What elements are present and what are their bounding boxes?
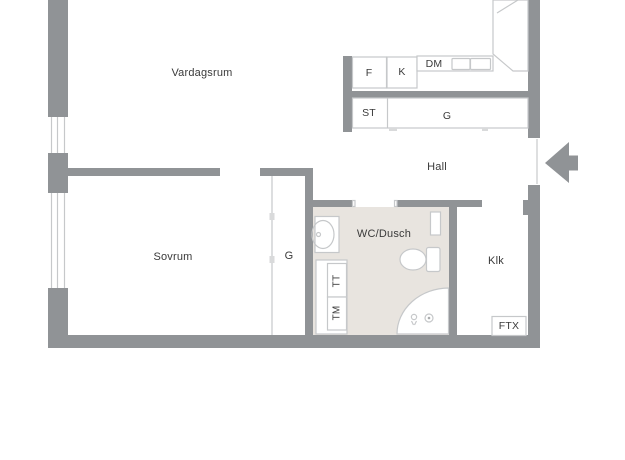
closet-door-tick-left: [389, 128, 397, 131]
hall-closet-row: [353, 98, 529, 128]
cleaning-closet-label: ST: [362, 107, 376, 119]
dishwasher-label: DM: [426, 58, 443, 70]
sink-basin-left: [452, 59, 470, 70]
corner-counter: [493, 0, 528, 71]
bedroom-label: Sovrum: [153, 251, 192, 263]
walk-in-closet-label: Klk: [488, 255, 504, 267]
bedroom-wardrobe-label: G: [285, 250, 294, 262]
window-livingroom: [52, 117, 65, 153]
living-room-label: Vardagsrum: [171, 67, 232, 79]
fixture-layer: [0, 0, 625, 460]
bathroom-radiator: [431, 212, 441, 235]
closet-door-tick-right: [482, 128, 488, 131]
window-bedroom: [52, 193, 65, 288]
wardrobe-handle-lower: [270, 256, 275, 263]
bathroom-door-jamb-right: [395, 201, 398, 207]
floor-plan: Vardagsrum Hall Sovrum WC/Dusch Klk G F …: [0, 0, 625, 460]
tumble-dryer-label: TT: [332, 275, 343, 288]
sink-basin-right: [471, 59, 491, 70]
freezer-label: F: [366, 67, 373, 79]
toilet-bowl: [400, 249, 426, 270]
ventilation-unit-label: FTX: [499, 320, 519, 332]
washbasin-tap: [317, 233, 321, 237]
wardrobe-handle-upper: [270, 213, 275, 220]
hall-label: Hall: [427, 161, 447, 173]
bathroom-label: WC/Dusch: [357, 228, 411, 240]
fridge-label: K: [398, 66, 405, 78]
entrance-arrow-icon: [545, 142, 578, 183]
washing-machine-label: TM: [332, 306, 343, 321]
shower-mixer: [411, 314, 416, 319]
toilet-tank: [427, 248, 441, 272]
bathroom-door-jamb-left: [353, 201, 356, 207]
shower-drain-center: [428, 317, 431, 320]
hall-wardrobe-label: G: [443, 110, 451, 122]
shower-area: [397, 288, 449, 334]
